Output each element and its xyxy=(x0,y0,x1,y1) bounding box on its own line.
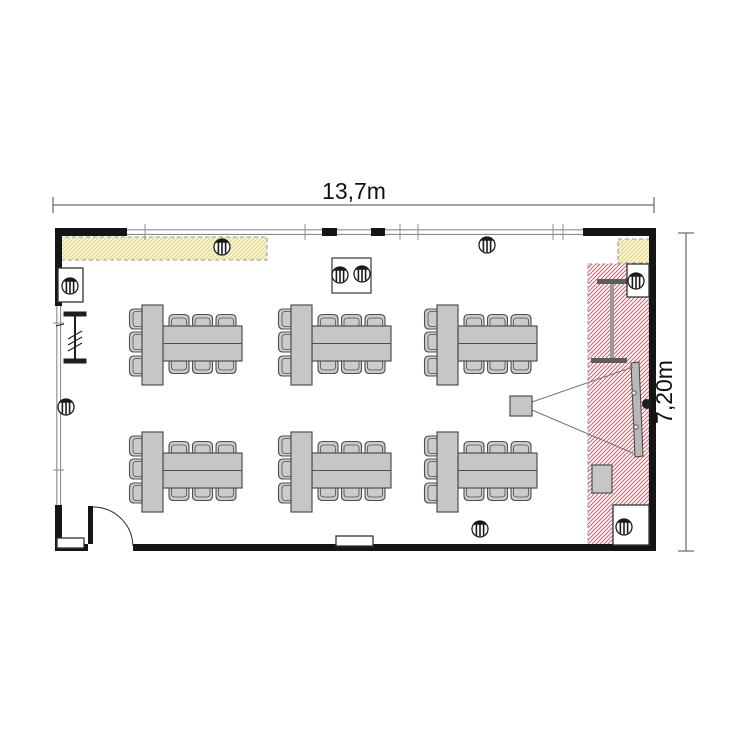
door-leaf xyxy=(88,506,93,544)
lectern xyxy=(592,465,612,493)
cabinet-top-right xyxy=(627,264,649,297)
downlight-bottom xyxy=(472,521,488,537)
floor-plan-page: 13,7m 7,20m xyxy=(0,0,750,750)
entrance-door xyxy=(88,506,133,546)
downlight-top-2 xyxy=(479,237,495,253)
screen-wall-bracket xyxy=(642,399,652,409)
downlight-left xyxy=(58,399,74,415)
ceiling-light-unit xyxy=(332,258,371,293)
table-group-5 xyxy=(279,432,392,512)
overhead-cabinet-area-top-left xyxy=(58,237,267,260)
cabinet-bottom-right xyxy=(613,505,649,545)
wall-niche xyxy=(57,538,84,548)
radiator xyxy=(336,536,373,546)
table-group-4 xyxy=(130,432,243,512)
door-swing-arc xyxy=(93,507,133,546)
table-group-6 xyxy=(425,432,538,512)
table-group-2 xyxy=(279,305,392,385)
floor-plan: 13,7m 7,20m xyxy=(0,0,750,750)
dimension-top: 13,7m xyxy=(53,178,654,213)
downlight-top-1 xyxy=(214,239,230,255)
table-group-3 xyxy=(425,305,538,385)
overhead-cabinet-area-top-right xyxy=(618,239,650,263)
cabinet-top-left xyxy=(58,268,83,302)
dimension-right: 7,20m xyxy=(651,233,694,551)
width-dimension-label: 13,7m xyxy=(322,178,386,204)
table-group-1 xyxy=(130,305,243,385)
